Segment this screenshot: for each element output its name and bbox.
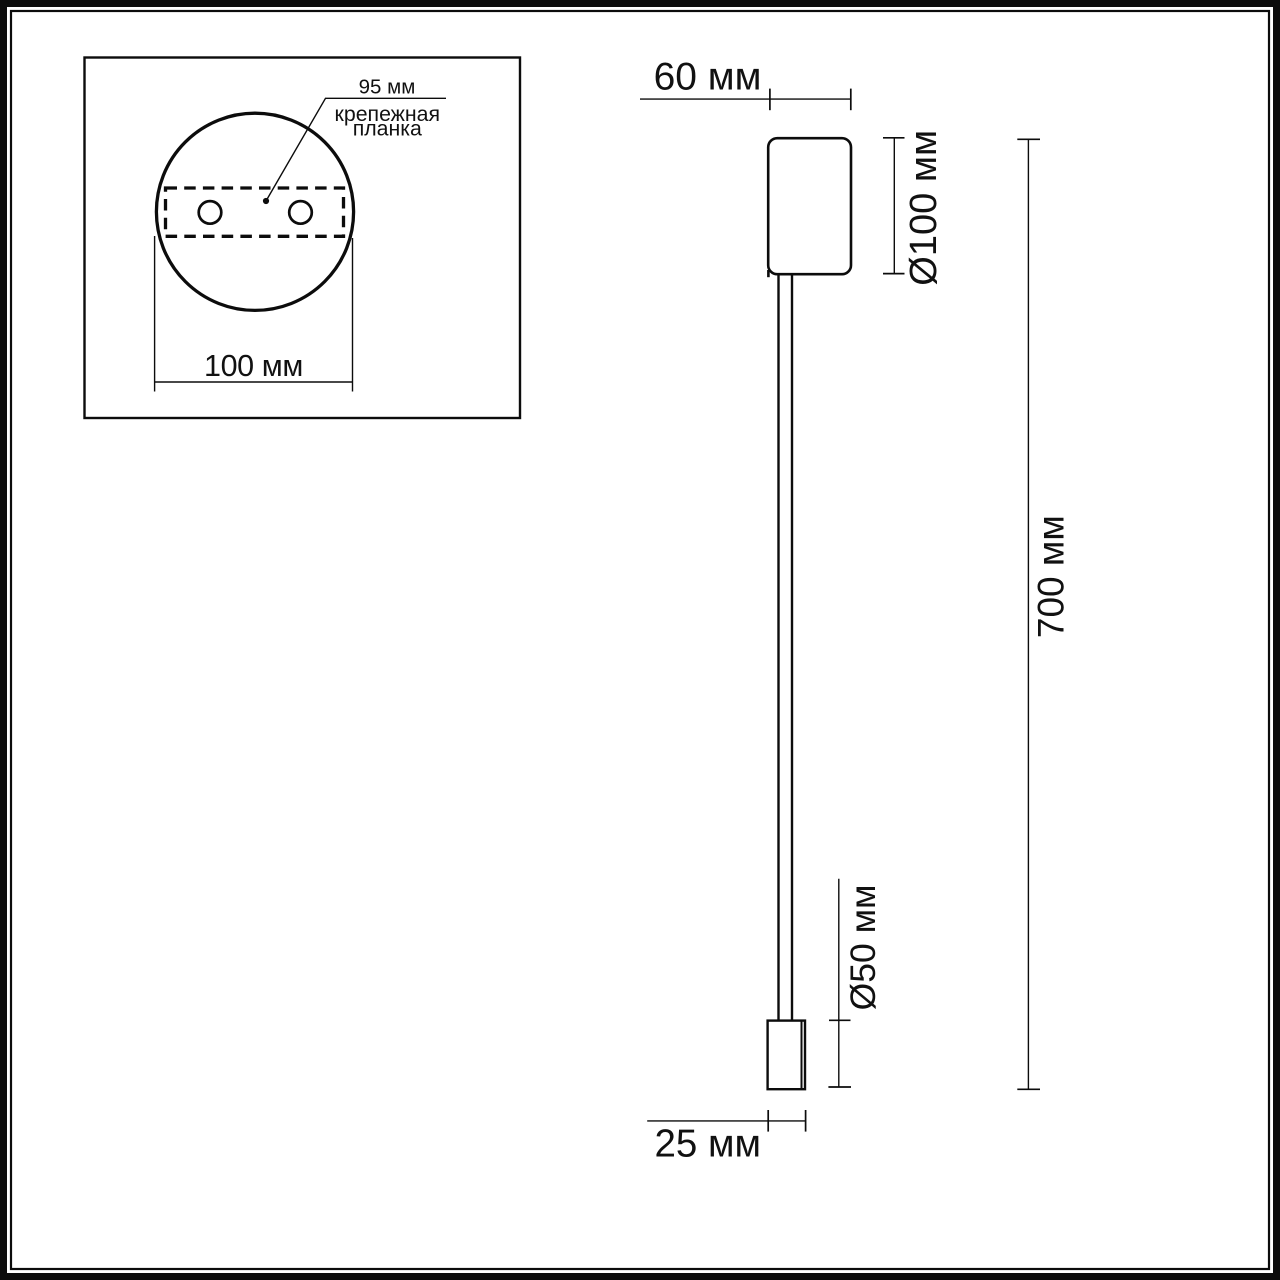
svg-text:60 мм: 60 мм bbox=[654, 55, 762, 98]
svg-text:100 мм: 100 мм bbox=[204, 349, 303, 383]
svg-text:25 мм: 25 мм bbox=[654, 1123, 760, 1166]
svg-text:планка: планка bbox=[353, 117, 422, 141]
svg-text:Ø50 мм: Ø50 мм bbox=[843, 885, 883, 1011]
svg-text:95 мм: 95 мм bbox=[359, 76, 416, 99]
svg-text:Ø100 мм: Ø100 мм bbox=[903, 130, 945, 286]
svg-text:700 мм: 700 мм bbox=[1031, 515, 1072, 638]
